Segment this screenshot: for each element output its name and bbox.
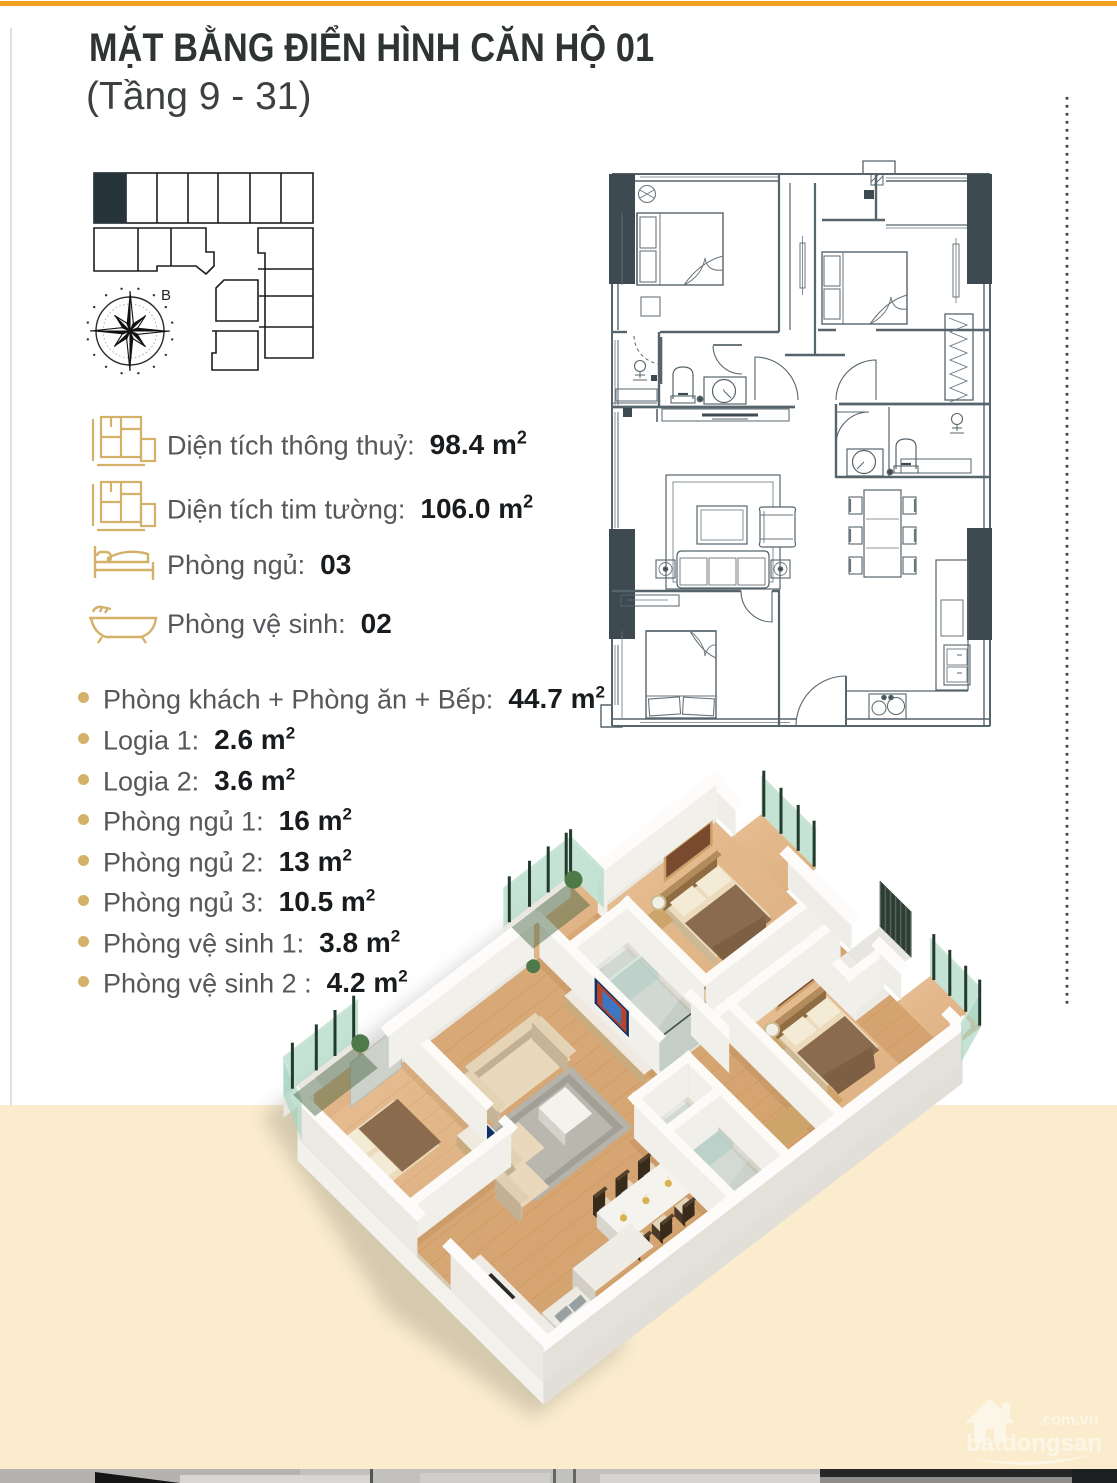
svg-text:.com.vn: .com.vn [1038, 1412, 1098, 1429]
svg-text:batdongsan: batdongsan [966, 1430, 1102, 1457]
